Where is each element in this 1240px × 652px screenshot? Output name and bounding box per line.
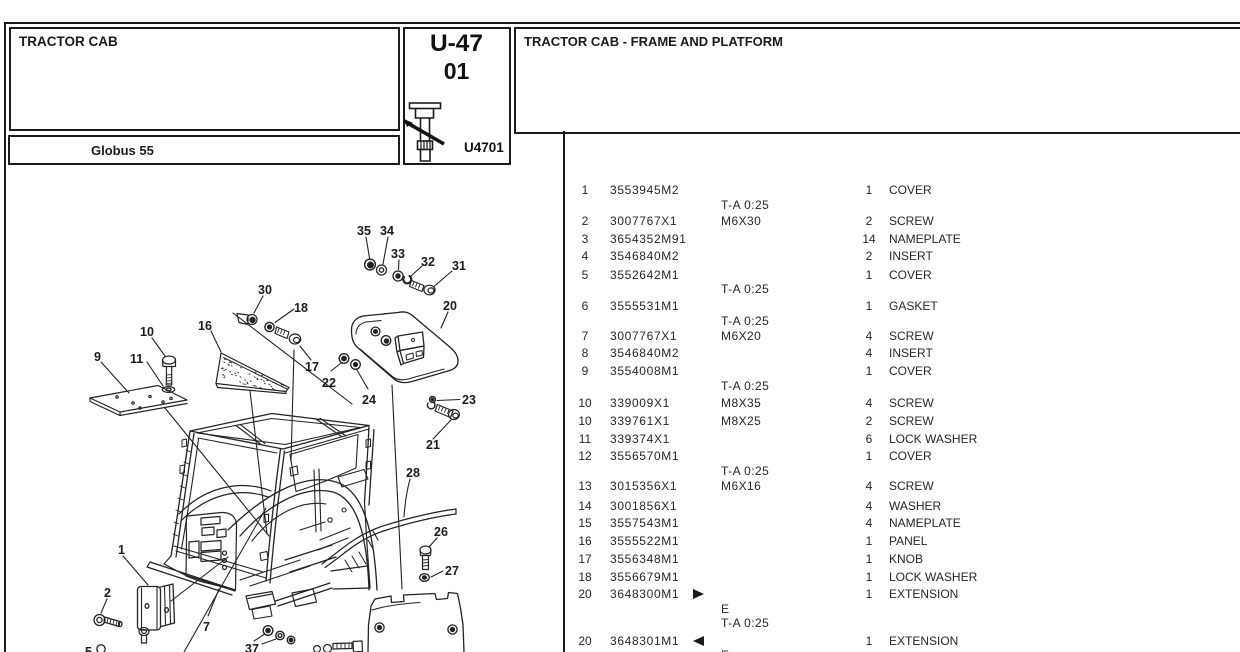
svg-text:24: 24 (362, 393, 376, 407)
svg-text:31: 31 (452, 259, 466, 273)
svg-text:22: 22 (322, 376, 336, 390)
svg-text:10: 10 (140, 325, 154, 339)
svg-text:28: 28 (406, 466, 420, 480)
svg-text:5: 5 (85, 645, 92, 652)
svg-text:18: 18 (294, 301, 308, 315)
svg-text:35: 35 (357, 224, 371, 238)
svg-text:7: 7 (203, 620, 210, 634)
svg-text:33: 33 (391, 247, 405, 261)
svg-text:2: 2 (104, 586, 111, 600)
svg-text:32: 32 (421, 255, 435, 269)
svg-text:27: 27 (445, 564, 459, 578)
svg-text:20: 20 (443, 299, 457, 313)
svg-text:17: 17 (305, 360, 319, 374)
svg-text:9: 9 (94, 350, 101, 364)
svg-text:1: 1 (118, 543, 125, 557)
svg-text:21: 21 (426, 438, 440, 452)
svg-text:37: 37 (245, 642, 259, 652)
svg-text:30: 30 (258, 283, 272, 297)
svg-text:16: 16 (198, 319, 212, 333)
svg-text:23: 23 (462, 393, 476, 407)
svg-text:11: 11 (130, 352, 143, 366)
svg-text:26: 26 (434, 525, 448, 539)
svg-text:34: 34 (380, 224, 394, 238)
